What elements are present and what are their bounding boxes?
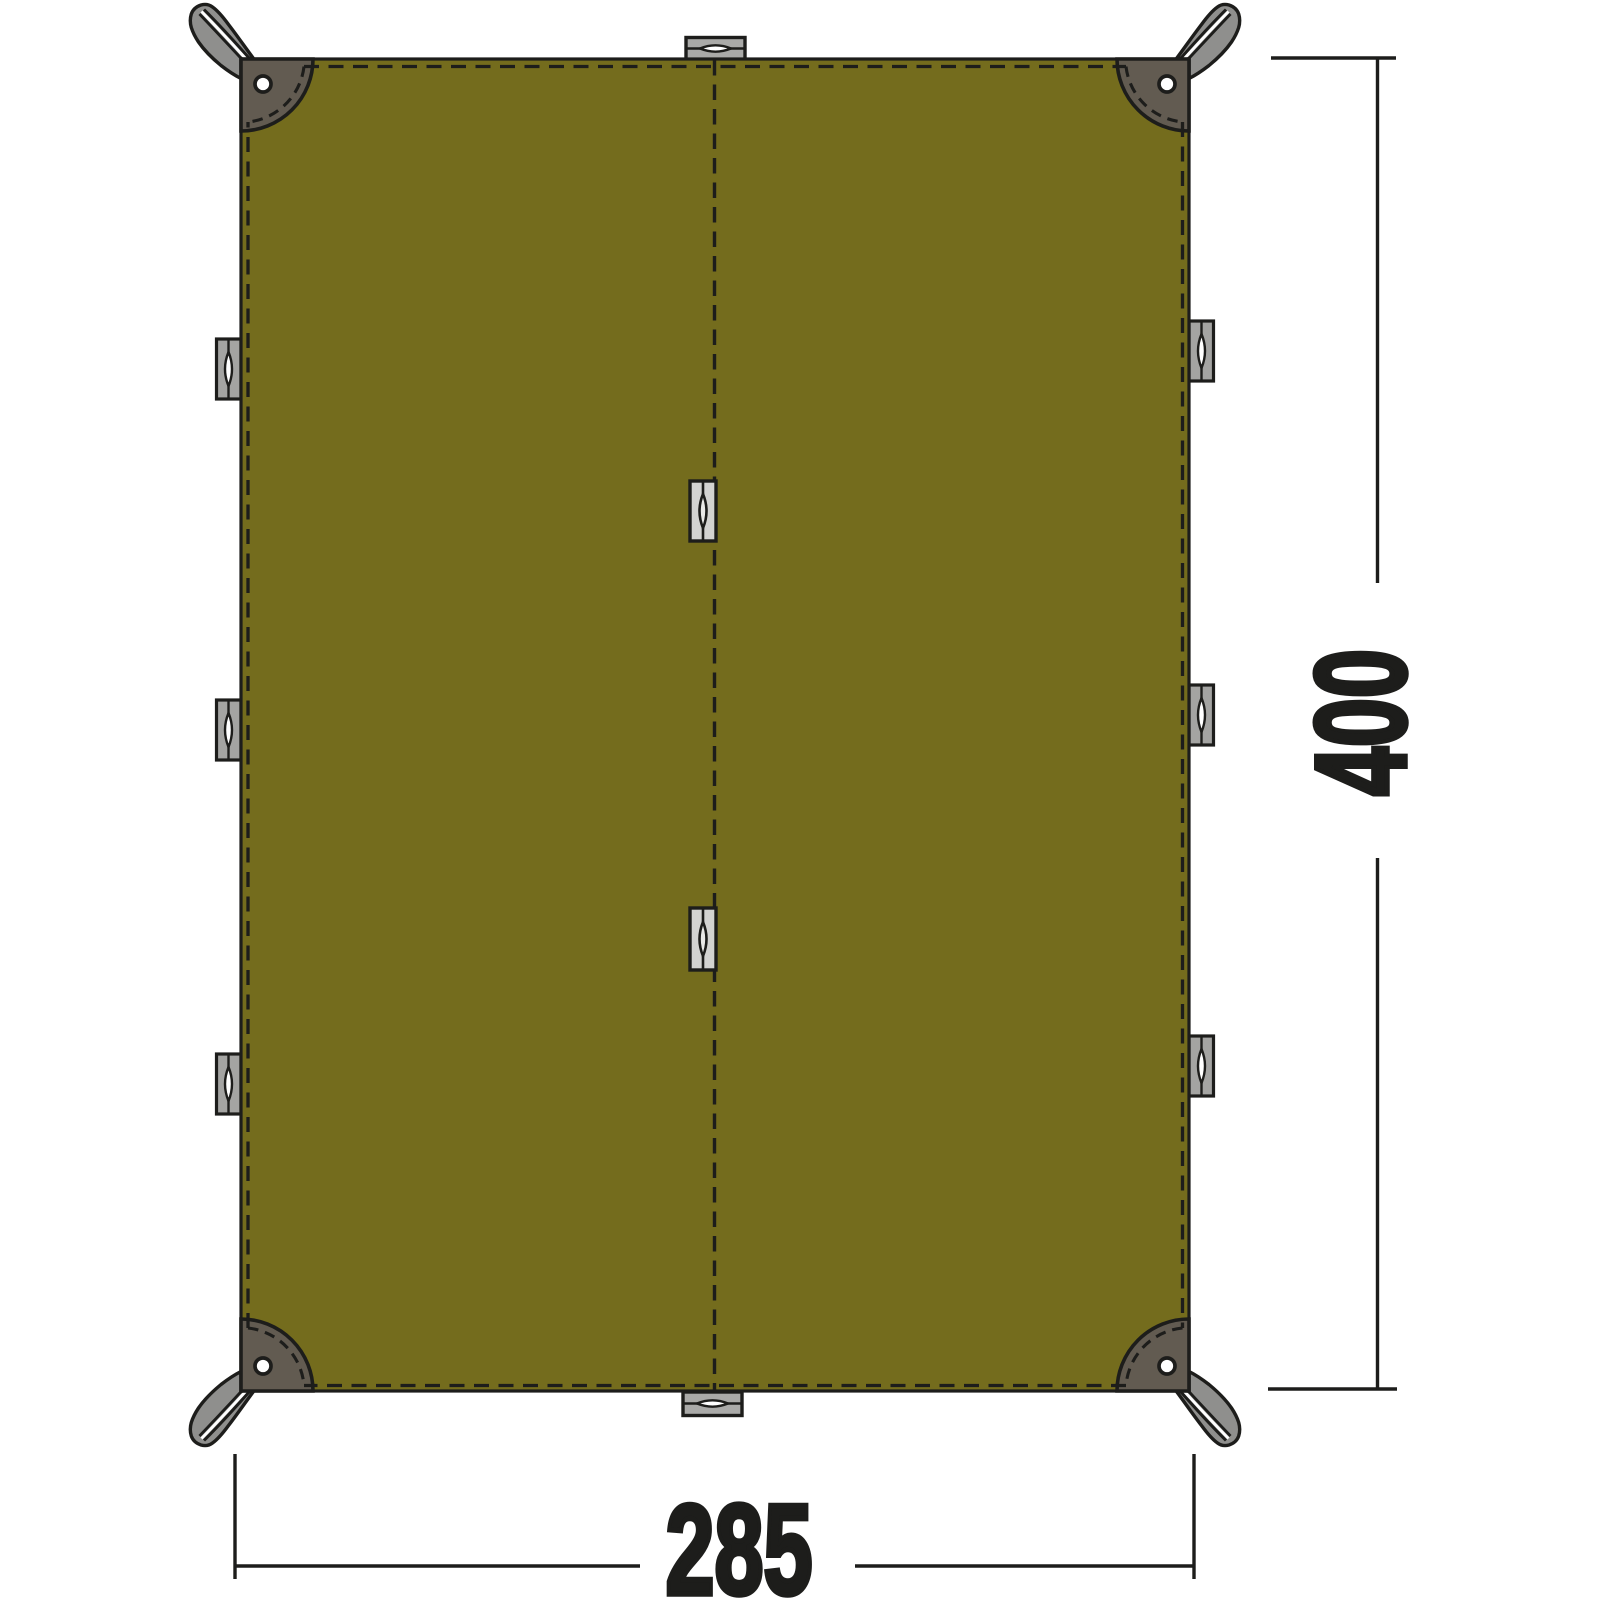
svg-text:285: 285 xyxy=(666,1479,813,1600)
svg-text:400: 400 xyxy=(1290,649,1433,796)
